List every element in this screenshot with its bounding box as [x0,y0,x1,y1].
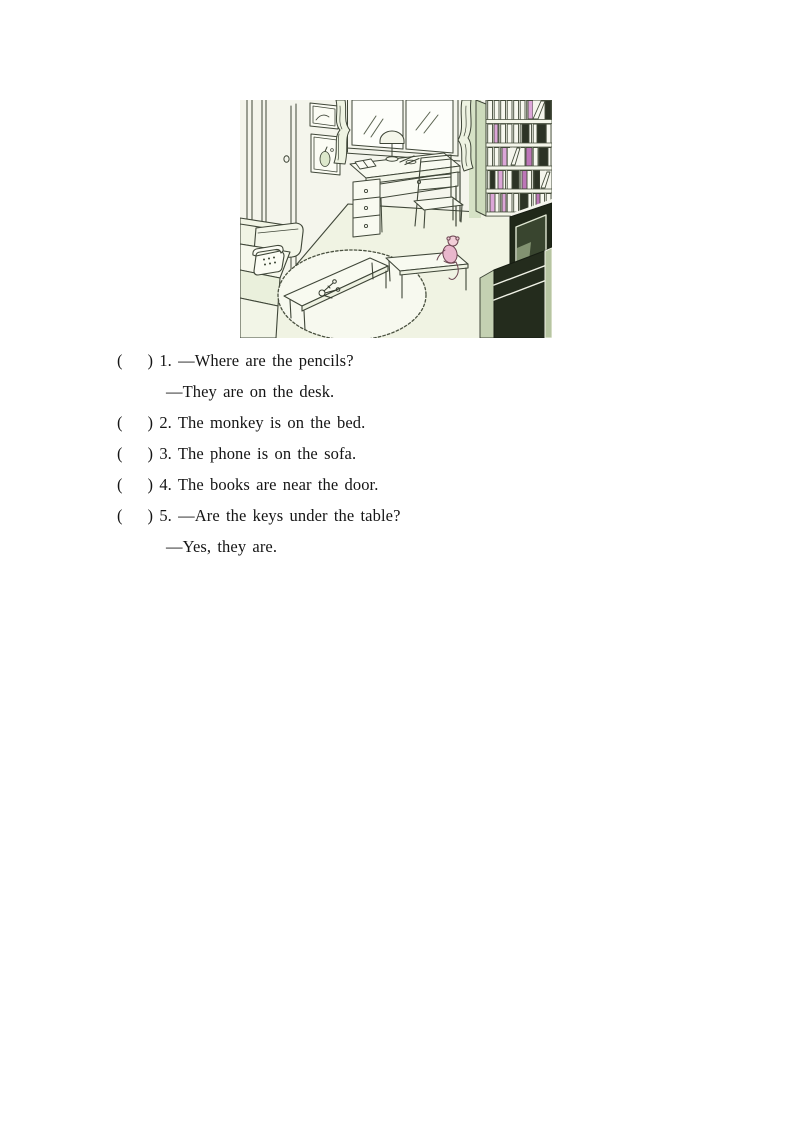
question-2-text: ( ) 2. The monkey is on the bed. [117,413,365,432]
question-2: ( ) 2. The monkey is on the bed. [117,407,401,438]
phone [253,245,284,275]
question-1-answer-text: —They are on the desk. [166,382,334,401]
question-1-answer: —They are on the desk. [166,376,401,407]
question-5: ( ) 5. —Are the keys under the table? [117,500,401,531]
picture-frames [310,103,340,175]
bookshelf [476,100,552,216]
question-1-text: ( ) 1. —Where are the pencils? [117,351,354,370]
question-1: ( ) 1. —Where are the pencils? [117,345,401,376]
question-5-answer: —Yes, they are. [166,531,401,562]
question-4-text: ( ) 4. The books are near the door. [117,475,378,494]
room-scene-illustration [240,100,552,338]
question-4: ( ) 4. The books are near the door. [117,469,401,500]
books [486,100,552,216]
question-5-text: ( ) 5. —Are the keys under the table? [117,506,401,525]
room-illustration [240,100,552,338]
desk-drawers [353,179,380,237]
question-3-text: ( ) 3. The phone is on the sofa. [117,444,356,463]
question-5-answer-text: —Yes, they are. [166,537,277,556]
question-list: ( ) 1. —Where are the pencils? —They are… [117,345,401,562]
question-3: ( ) 3. The phone is on the sofa. [117,438,401,469]
worksheet-page: ( ) 1. —Where are the pencils? —They are… [0,0,793,1122]
